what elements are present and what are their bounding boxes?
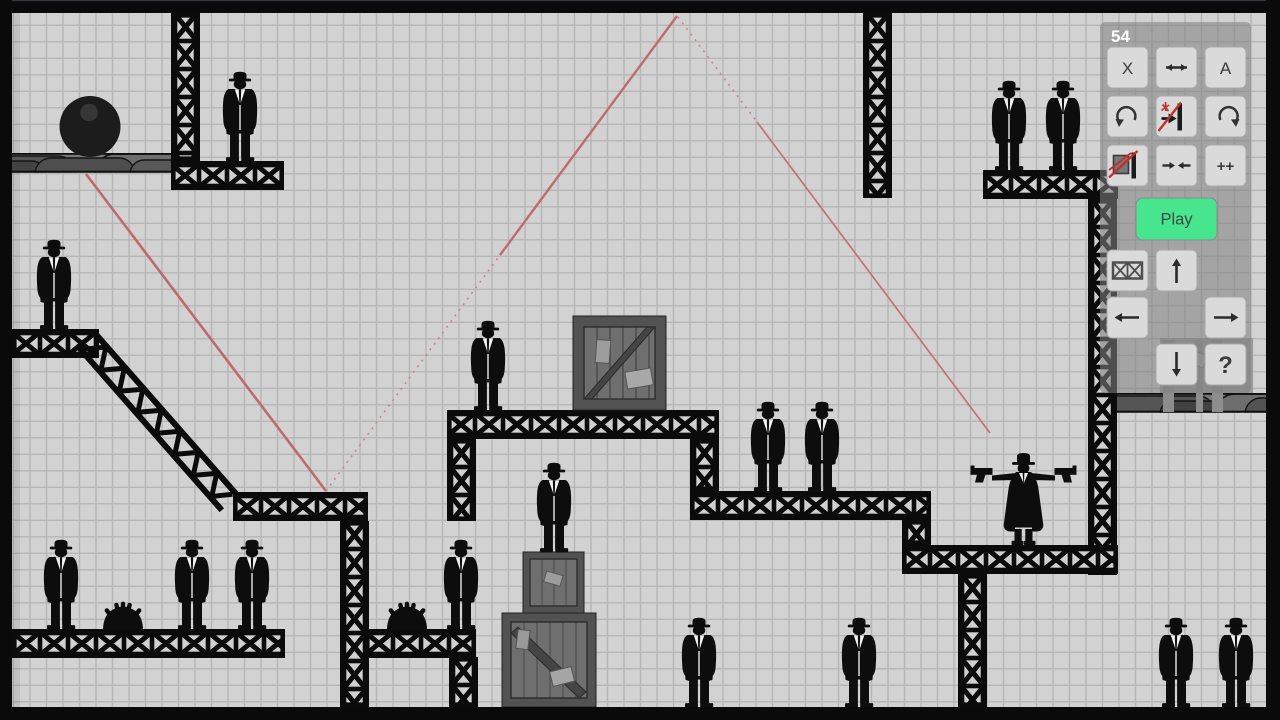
svg-text:Play: Play [1160, 211, 1193, 229]
svg-text:++: ++ [1217, 158, 1235, 175]
svg-text:54: 54 [1111, 27, 1130, 46]
svg-text:X: X [1122, 59, 1133, 78]
svg-text:A: A [1220, 59, 1232, 78]
svg-text:?: ? [1218, 352, 1233, 379]
